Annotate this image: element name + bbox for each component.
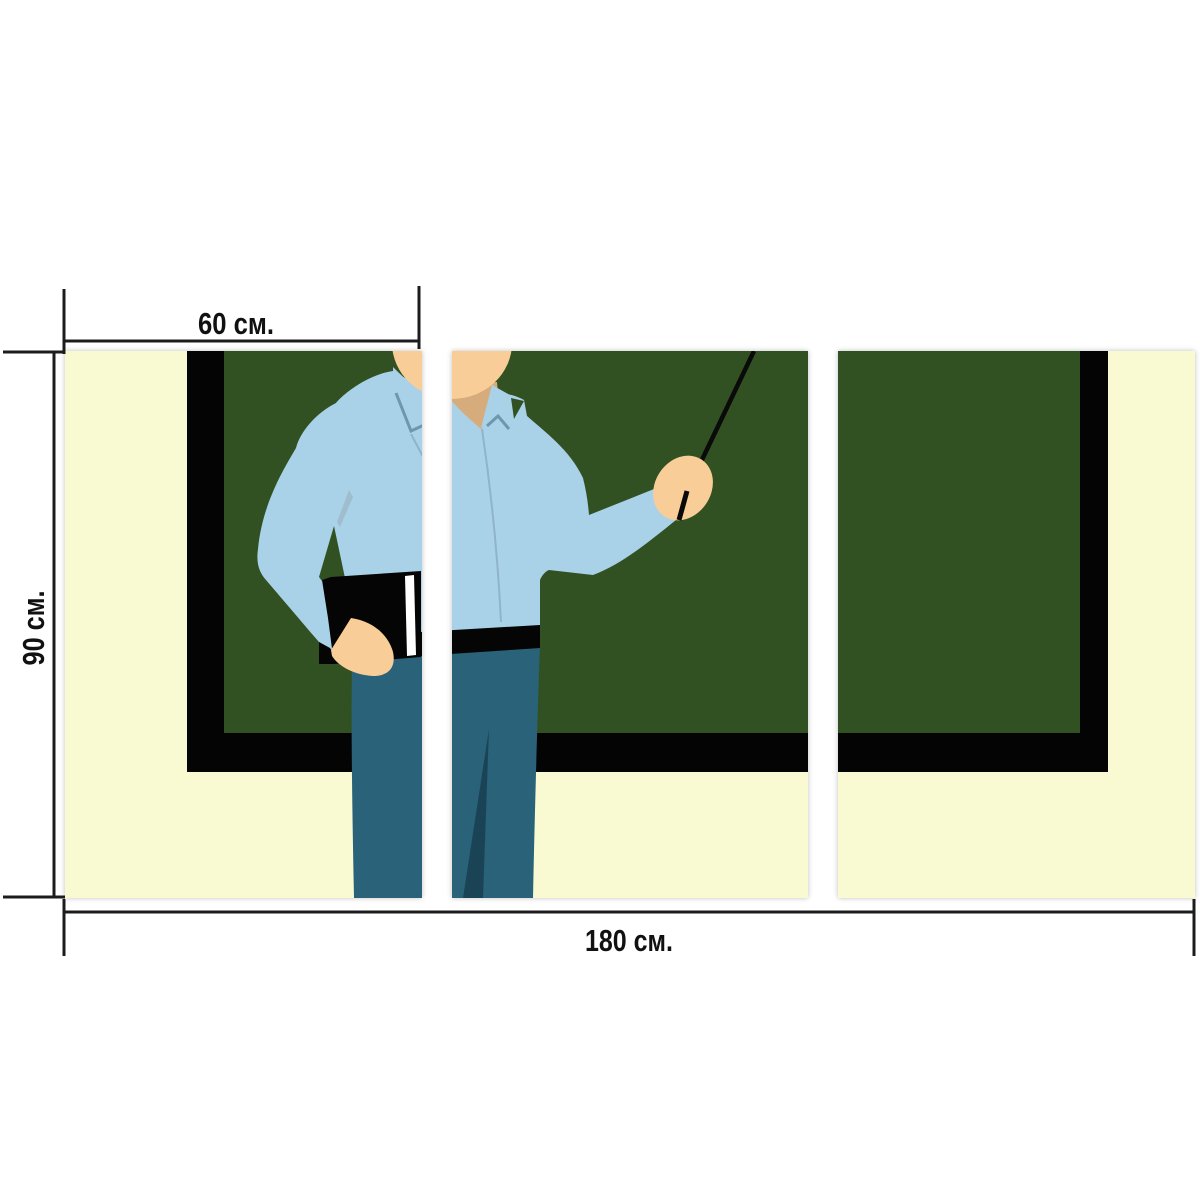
svg-text:180 см.: 180 см. xyxy=(585,923,673,958)
svg-text:60 см.: 60 см. xyxy=(198,306,274,341)
svg-text:90 см.: 90 см. xyxy=(16,591,51,666)
